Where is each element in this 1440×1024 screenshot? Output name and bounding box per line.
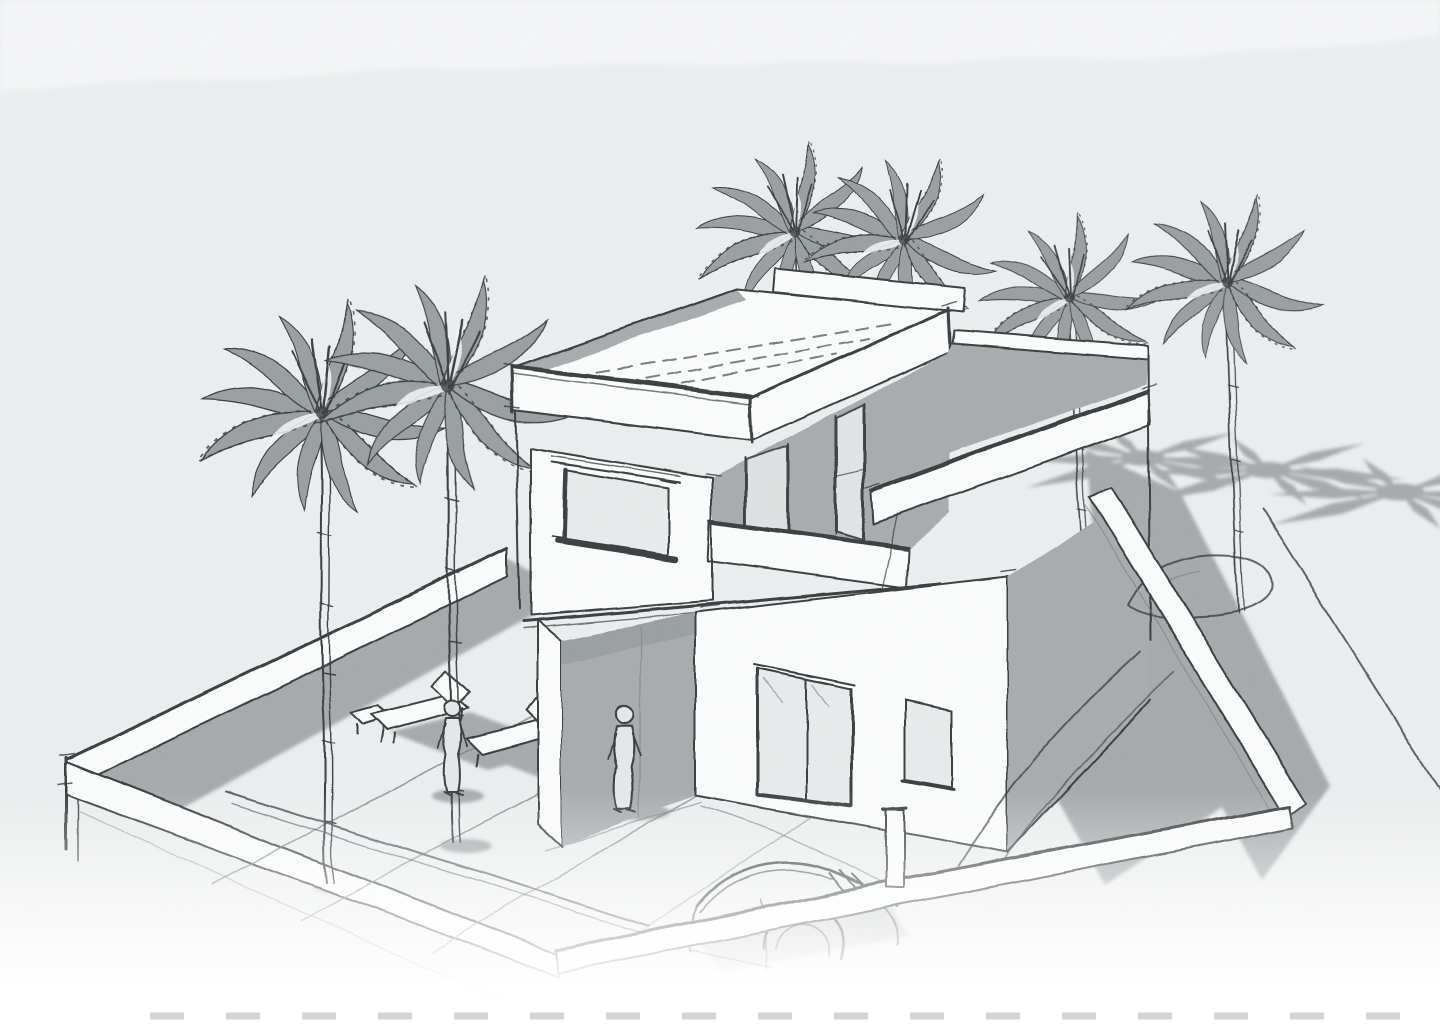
architectural-sketch: Architectural concept sketch Modern two-… <box>0 0 1440 1024</box>
sketch-page: Architectural concept sketch Aerial pers… <box>0 0 1440 1024</box>
bottom-fade <box>0 790 1440 1024</box>
